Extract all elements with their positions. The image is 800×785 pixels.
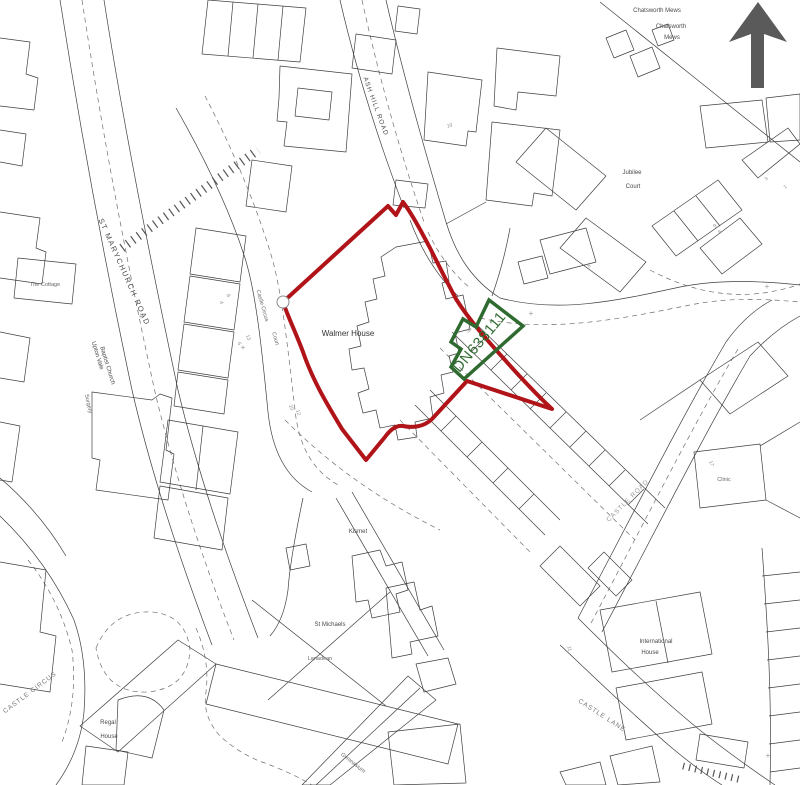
building-outline	[700, 94, 800, 148]
building-outline	[395, 6, 420, 34]
lanadean-label: Lanadean	[308, 656, 332, 662]
building-outline	[277, 66, 352, 152]
building-outline	[352, 34, 396, 74]
building-outline	[393, 180, 428, 208]
building-outline	[92, 392, 174, 500]
house-number: 4	[218, 300, 225, 305]
road-label-castle-circus-court-line2: Court	[270, 331, 280, 346]
road-dashline	[590, 349, 738, 625]
chatsworth-label-line2: Mews	[664, 35, 680, 41]
road-edge	[0, 478, 66, 556]
kismet-label: Kismet	[349, 529, 368, 535]
plot-dashline	[196, 628, 312, 785]
gymnasium-label: Gymnasium	[339, 752, 366, 775]
road-label-castle-lane: CASTLE LANE	[577, 698, 627, 734]
house-number: 13	[244, 334, 252, 341]
building-outline	[518, 228, 596, 284]
building-outline	[386, 582, 438, 658]
house-number: 8	[225, 293, 232, 298]
road-edge	[560, 645, 722, 785]
survey-cross: +	[241, 343, 246, 352]
the-cottage-label: The Cottage	[30, 282, 60, 288]
plot-number-label: 38	[465, 326, 473, 334]
road-edge	[750, 316, 800, 356]
building-outline	[424, 72, 482, 146]
road-label-st-marychurch: ST MARYCHURCH ROAD	[97, 217, 153, 327]
road-label-castle-circus: CASTLE CIRCUS	[2, 670, 58, 715]
road-network	[0, 0, 800, 785]
terrace-dividers	[472, 335, 644, 505]
building-outline	[246, 160, 292, 212]
building-linework	[0, 0, 800, 785]
clinic-label: Clinic	[717, 477, 731, 483]
road-edge	[500, 282, 800, 306]
building-outline	[742, 128, 800, 178]
regal-house-label-line1: Regal	[100, 720, 116, 726]
international-house-label-line1: International	[639, 639, 672, 645]
chatsworth-mews-label: Chatsworth Mews	[633, 8, 681, 14]
walmer-house-label: Walmer House	[322, 329, 375, 338]
building-outline	[560, 218, 646, 292]
road-label-castle-road: CASTLE ROAD	[605, 478, 650, 523]
building-outline	[116, 696, 164, 758]
north-arrow-icon	[729, 2, 787, 88]
garden-dashline	[440, 348, 635, 540]
building-outline	[652, 180, 742, 256]
building-outline	[560, 734, 748, 785]
building-outline	[0, 212, 46, 284]
map-canvas: Walmer House DN638111 38 ST MARYCHURCH R…	[0, 0, 800, 785]
building-outline	[202, 0, 306, 62]
st-michaels-label: St Michaels	[314, 622, 345, 628]
survey-cross: +	[139, 312, 144, 321]
map-labels: Walmer House DN638111 38 ST MARYCHURCH R…	[2, 8, 788, 775]
jubilee-court-label-line2: Court	[626, 184, 641, 190]
plot-line	[252, 592, 390, 706]
building-outline	[516, 128, 606, 210]
road-dashline	[205, 96, 340, 486]
house-number: 17	[707, 460, 715, 467]
building-outline	[486, 122, 560, 206]
road-dashline	[82, 0, 234, 640]
site-location-plan: Walmer House DN638111 38 ST MARYCHURCH R…	[0, 0, 800, 785]
building-outline	[540, 546, 632, 606]
house-number: 10	[287, 404, 295, 411]
house-number: 3	[764, 176, 770, 183]
jubilee-court-label-line1: Jubilee	[622, 170, 642, 176]
building-outline	[606, 24, 674, 77]
survey-cross: +	[766, 751, 771, 760]
building-outline	[616, 672, 712, 740]
road-edge	[578, 342, 726, 618]
road-edge	[104, 0, 258, 638]
building-outline	[0, 130, 26, 166]
building-outline	[416, 658, 456, 692]
building-outline	[0, 562, 56, 692]
house-number: 9	[712, 223, 718, 230]
regal-house-label-line2: House	[100, 734, 118, 740]
survey-cross: +	[765, 282, 770, 291]
survey-cross: +	[529, 309, 534, 318]
plot-line	[228, 2, 283, 60]
road-label-castle-circus-court-line1: Castle Circus	[255, 289, 270, 322]
road-edge	[386, 0, 500, 298]
chatsworth-label-line1: Chatsworth	[656, 24, 686, 30]
garden-dashline	[400, 420, 530, 552]
building-outline	[700, 342, 788, 414]
surgery-label: Surgery	[83, 394, 93, 414]
traffic-island	[96, 612, 190, 692]
road-edge	[726, 300, 772, 342]
building-outline	[700, 218, 762, 274]
lane-edge	[316, 688, 420, 785]
plot-line	[270, 498, 303, 636]
site-boundary	[277, 202, 552, 460]
building-outline	[174, 228, 246, 414]
building-outline	[0, 38, 38, 110]
house-number: 1	[783, 184, 789, 191]
international-house-label-line2: House	[641, 650, 659, 656]
building-outline	[154, 420, 238, 550]
terrace-dividers	[441, 416, 534, 509]
road-edge	[602, 356, 750, 632]
plot-line	[196, 426, 203, 490]
building-outline	[295, 88, 332, 120]
building-outline	[0, 422, 20, 482]
road-dashline	[362, 0, 424, 222]
plot-line	[446, 202, 510, 296]
building-outline	[494, 48, 560, 110]
building-outline	[694, 444, 766, 508]
terrace-dividers	[762, 572, 800, 772]
house-number: 19	[446, 122, 453, 129]
road-dashline	[28, 560, 74, 742]
steps-hatch	[683, 766, 742, 780]
building-outline	[82, 746, 128, 785]
building-outline	[0, 332, 30, 382]
boundary-vertex-marker	[277, 296, 289, 308]
building-outline	[286, 544, 310, 570]
building-outline	[388, 724, 466, 785]
terrace-edge	[762, 548, 771, 785]
plot-line	[674, 196, 720, 241]
